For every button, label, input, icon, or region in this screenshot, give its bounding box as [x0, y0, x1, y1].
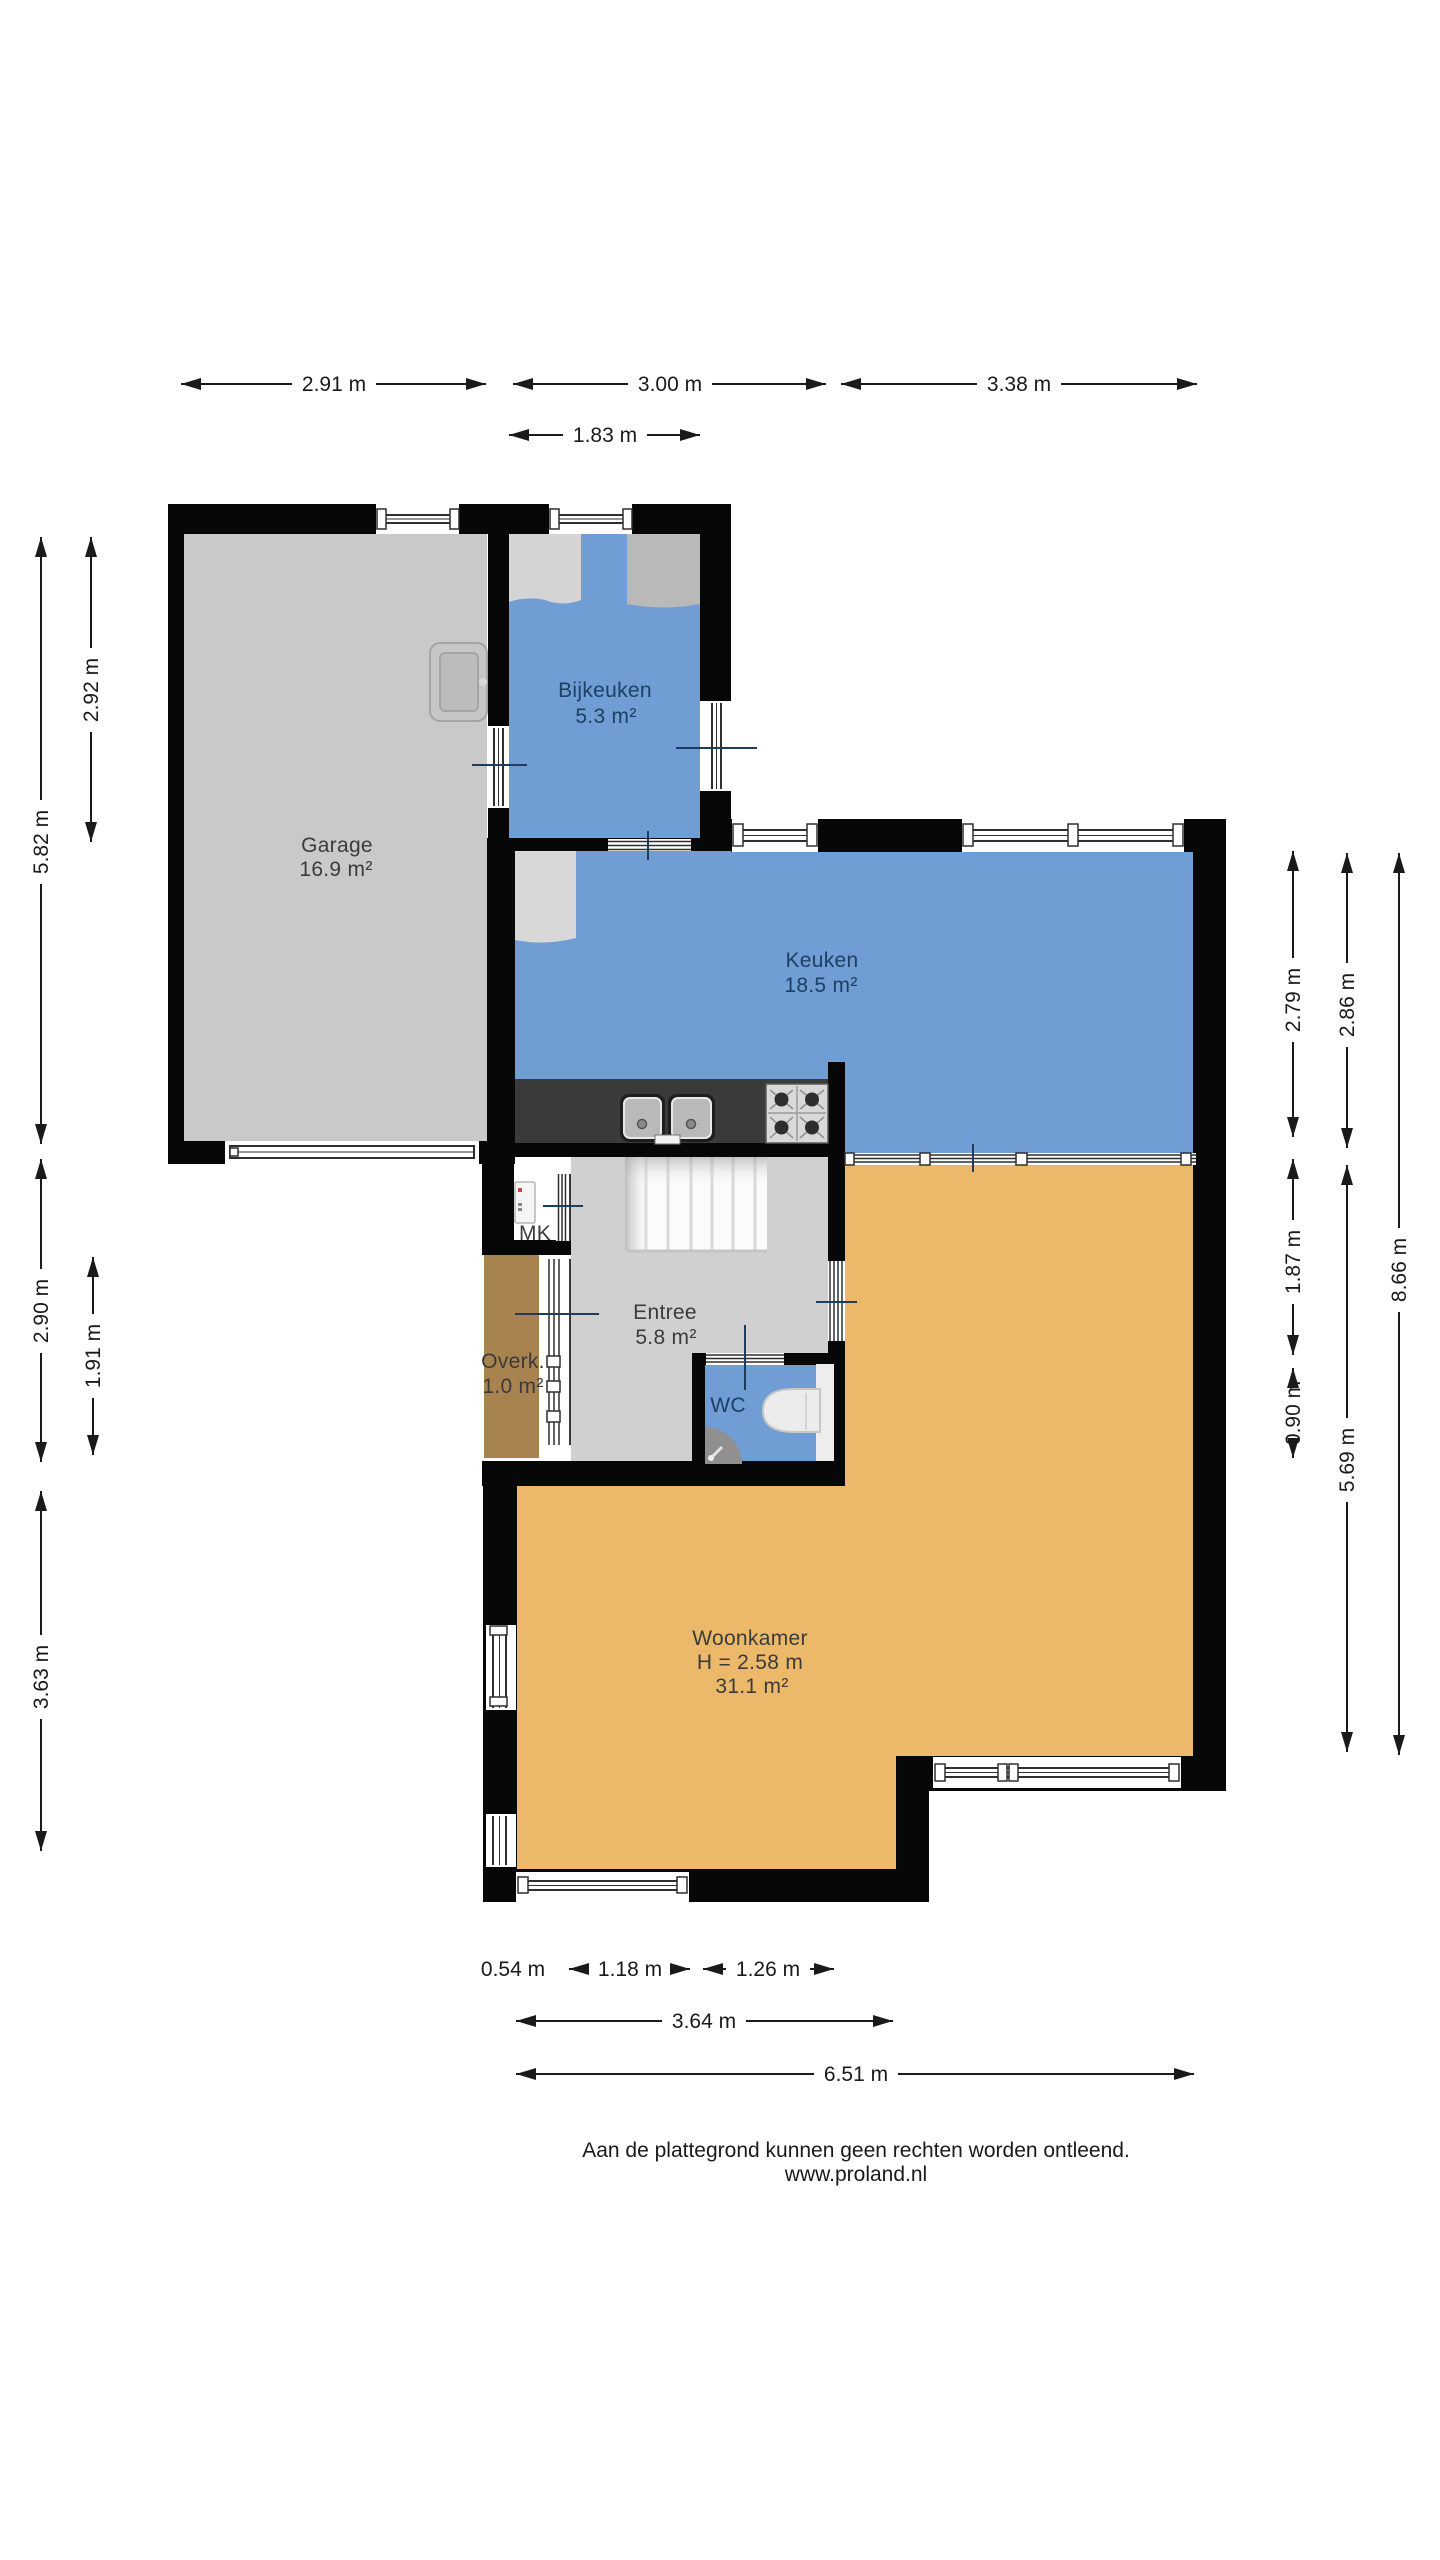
svg-text:5.69 m: 5.69 m: [1336, 1428, 1359, 1492]
svg-text:2.90 m: 2.90 m: [30, 1279, 53, 1343]
svg-text:1.87 m: 1.87 m: [1282, 1230, 1305, 1294]
svg-text:6.51 m: 6.51 m: [824, 2063, 888, 2086]
svg-text:www.proland.nl: www.proland.nl: [784, 2163, 927, 2186]
svg-text:Entree: Entree: [633, 1301, 697, 1324]
svg-text:3.63 m: 3.63 m: [30, 1645, 53, 1709]
svg-text:1.18 m: 1.18 m: [598, 1958, 662, 1981]
svg-text:1.91 m: 1.91 m: [82, 1324, 105, 1388]
svg-text:Aan de plattegrond kunnen geen: Aan de plattegrond kunnen geen rechten w…: [582, 2139, 1130, 2162]
svg-text:5.82 m: 5.82 m: [30, 810, 53, 874]
svg-text:H = 2.58 m: H = 2.58 m: [697, 1651, 803, 1674]
svg-text:2.91 m: 2.91 m: [302, 373, 366, 396]
svg-text:2.79 m: 2.79 m: [1282, 968, 1305, 1032]
svg-text:5.8 m²: 5.8 m²: [635, 1326, 696, 1349]
svg-text:16.9 m²: 16.9 m²: [299, 858, 372, 881]
svg-text:Overk.: Overk.: [481, 1350, 545, 1373]
svg-text:3.64 m: 3.64 m: [672, 2010, 736, 2033]
svg-text:0.90 m: 0.90 m: [1282, 1381, 1305, 1445]
svg-text:18.5 m²: 18.5 m²: [784, 974, 857, 997]
svg-text:3.00 m: 3.00 m: [638, 373, 702, 396]
svg-text:1.83 m: 1.83 m: [573, 424, 637, 447]
svg-text:WC: WC: [710, 1394, 746, 1417]
svg-text:2.92 m: 2.92 m: [80, 658, 103, 722]
svg-text:2.86 m: 2.86 m: [1336, 973, 1359, 1037]
svg-text:31.1 m²: 31.1 m²: [715, 1675, 788, 1698]
svg-text:1.0 m²: 1.0 m²: [482, 1375, 543, 1398]
svg-text:Woonkamer: Woonkamer: [692, 1627, 808, 1650]
svg-text:Bijkeuken: Bijkeuken: [558, 679, 652, 702]
svg-text:1.26 m: 1.26 m: [736, 1958, 800, 1981]
svg-text:0.54 m: 0.54 m: [481, 1958, 545, 1981]
svg-text:8.66 m: 8.66 m: [1388, 1238, 1411, 1302]
svg-text:Garage: Garage: [301, 834, 373, 857]
svg-text:Keuken: Keuken: [785, 949, 858, 972]
svg-text:5.3 m²: 5.3 m²: [575, 705, 636, 728]
svg-text:3.38 m: 3.38 m: [987, 373, 1051, 396]
svg-text:MK: MK: [519, 1222, 551, 1245]
